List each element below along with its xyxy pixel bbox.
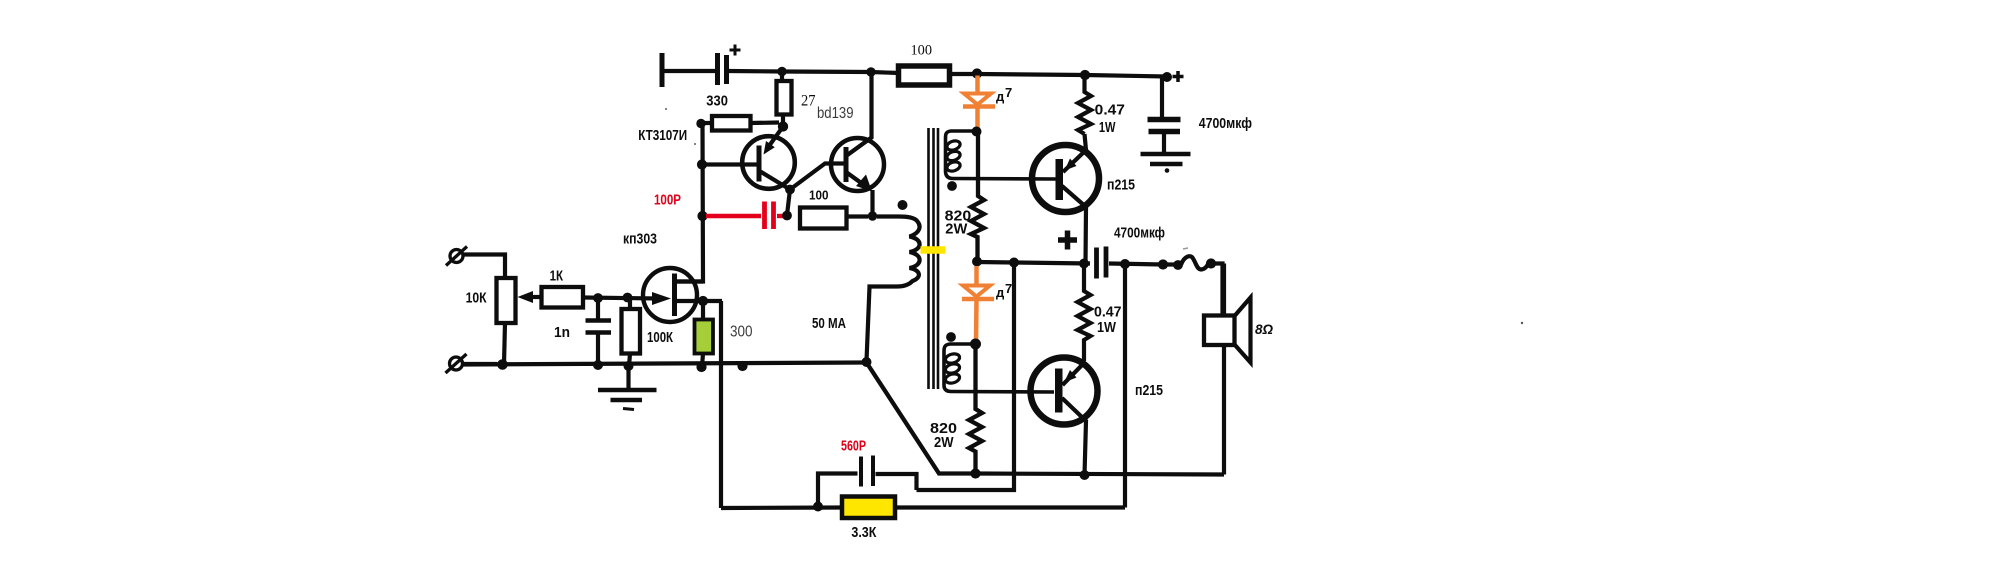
svg-text:д: д bbox=[996, 89, 1005, 104]
svg-text:300: 300 bbox=[730, 324, 753, 341]
svg-text:560Р: 560Р bbox=[841, 438, 866, 455]
svg-text:7: 7 bbox=[1005, 85, 1012, 100]
svg-text:0.47: 0.47 bbox=[1095, 102, 1125, 119]
svg-text:0.47: 0.47 bbox=[1094, 304, 1122, 321]
svg-text:д: д bbox=[996, 285, 1005, 300]
svg-text:кп303: кп303 bbox=[623, 231, 657, 248]
svg-text:КТ3107И: КТ3107И bbox=[638, 127, 687, 144]
svg-text:1n: 1n bbox=[554, 324, 570, 341]
svg-text:100К: 100К bbox=[647, 329, 674, 346]
svg-text:100: 100 bbox=[809, 189, 829, 203]
svg-text:3.3К: 3.3К bbox=[851, 524, 877, 541]
svg-text:330: 330 bbox=[706, 93, 728, 110]
svg-text:27: 27 bbox=[801, 93, 816, 110]
svg-text:bd139: bd139 bbox=[817, 105, 854, 122]
svg-text:1W: 1W bbox=[1097, 319, 1117, 336]
svg-text:7: 7 bbox=[1005, 281, 1012, 296]
svg-text:100: 100 bbox=[911, 43, 933, 59]
svg-text:50 МА: 50 МА bbox=[812, 315, 846, 332]
svg-text:1W: 1W bbox=[1099, 119, 1116, 136]
svg-text:2W: 2W bbox=[934, 434, 954, 451]
svg-text:4700мкф: 4700мкф bbox=[1114, 225, 1165, 242]
svg-text:100Р: 100Р bbox=[654, 192, 681, 209]
svg-text:10К: 10К bbox=[466, 290, 488, 307]
svg-text:2W: 2W bbox=[945, 221, 968, 238]
svg-text:п215: п215 bbox=[1135, 382, 1163, 399]
svg-text:1К: 1К bbox=[550, 268, 564, 285]
svg-text:4700мкф: 4700мкф bbox=[1199, 115, 1252, 132]
svg-text:п215: п215 bbox=[1107, 177, 1135, 194]
svg-text:8Ω: 8Ω bbox=[1255, 322, 1274, 337]
